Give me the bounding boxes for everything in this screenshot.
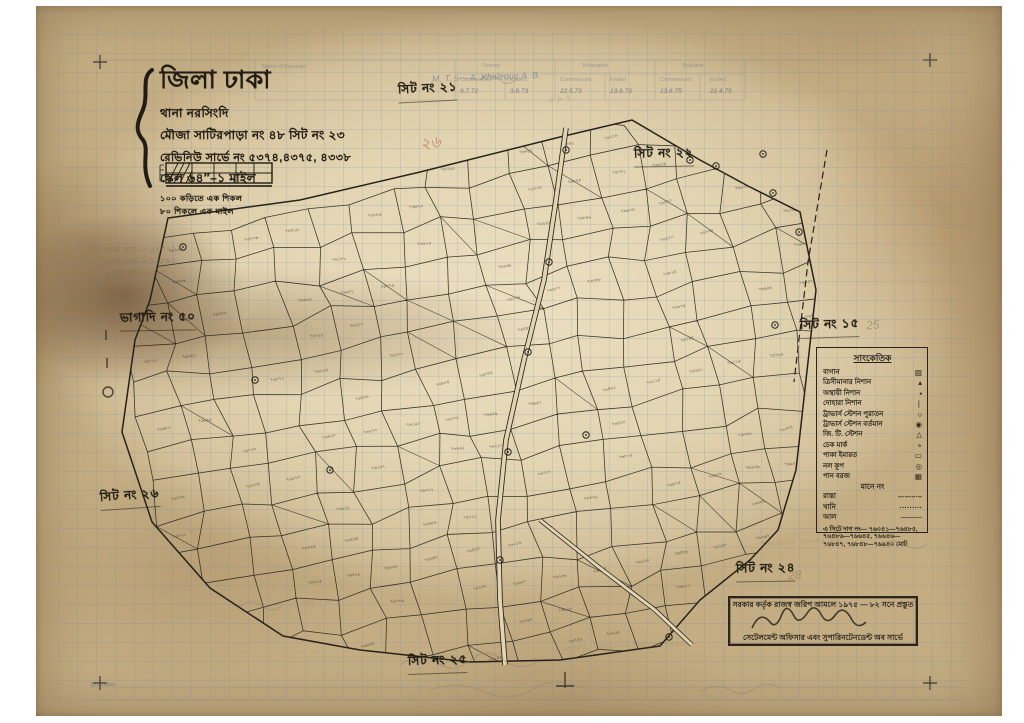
svg-text:৭৬৪২৪: ৭৬৪২৪ <box>465 546 480 555</box>
svg-text:৭৬৫৮০: ৭৬৫৮০ <box>658 198 673 207</box>
svg-text:৭৬৭৩০: ৭৬৭৩০ <box>242 446 257 454</box>
chains-scale-caption: 10 Chains <box>90 682 115 688</box>
legend-symbol: ──── <box>901 513 922 523</box>
legend-symbol: ▨ <box>915 368 922 378</box>
svg-text:৭৬৮৫৭: ৭৬৮৫৭ <box>519 148 534 154</box>
svg-text:৭৬৬২০: ৭৬৬২০ <box>512 578 527 586</box>
svg-text:৭৬৭১৮: ৭৬৭১৮ <box>604 133 619 141</box>
svg-text:৭৬৭৯৭: ৭৬৭৯৭ <box>519 617 534 625</box>
svg-text:৭৬৬৪৫: ৭৬৬৪৫ <box>424 554 439 562</box>
sheet-label: সিট নং ২৬ <box>99 485 160 511</box>
svg-text:৭৬২২৮: ৭৬২২৮ <box>635 557 650 565</box>
svg-text:৭৬৮২৮: ৭৬৮২৮ <box>383 564 398 571</box>
sheet-label: সিট নং ২৫ <box>408 651 468 675</box>
title-block: জিলা ঢাকা থানা নরসিংদি মৌজা সাটিরপাড়া ন… <box>160 60 351 219</box>
svg-text:৭৬৭৮৯: ৭৬৭৮৯ <box>390 598 404 604</box>
svg-text:৭৬১৩৪: ৭৬১৩৪ <box>506 294 521 302</box>
svg-text:৭৬৭৪৯: ৭৬৭৪৯ <box>478 369 493 378</box>
links-line-1: ১০০ কড়িতে এক শিকল <box>160 193 351 206</box>
form-date: 13.6.75 <box>660 88 682 95</box>
svg-text:৭৬৮৭৩: ৭৬৮৭৩ <box>270 376 285 383</box>
legend-symbol: ○ <box>917 410 922 420</box>
svg-text:৭৬১৯৫: ৭৬১৯৫ <box>680 335 695 343</box>
svg-text:৭৬৮০৪: ৭৬৮০৪ <box>618 452 633 459</box>
svg-text:৭৬৮২৫: ৭৬৮২৫ <box>662 269 677 277</box>
svg-text:৭৬১৮৪: ৭৬১৮৪ <box>779 424 794 433</box>
stamp-line-2: সেটেলমেন্ট অফিসার এবং সুপারিনটেনডেন্ট অব… <box>730 633 916 642</box>
svg-text:৭৬৩২৯: ৭৬৩২৯ <box>301 543 316 551</box>
form-date: 3.8.73 <box>510 88 528 95</box>
svg-text:৭৬৫১০: ৭৬৫১০ <box>659 234 674 243</box>
legend-title: সাংকেতিক <box>823 351 922 366</box>
svg-text:৭৬৭০৫: ৭৬৭০৫ <box>528 184 543 192</box>
svg-text:৭৬২০৪: ৭৬২০৪ <box>417 241 431 247</box>
svg-text:৭৬৭৯৮: ৭৬৭৯৮ <box>713 542 728 550</box>
svg-text:৭৬৯০৪: ৭৬৯০৪ <box>621 207 636 214</box>
svg-text:৭৬১৯০: ৭৬১৯০ <box>406 421 421 427</box>
legend-symbol: –·–·–·– <box>898 492 922 502</box>
revenue-survey-line: রেভিনিউ সার্ভে নং ৫৩৭৪,৪৩৭৫, ৪৩৩৮ <box>160 149 351 168</box>
form-group-head: Khanapuri <box>583 63 608 69</box>
svg-text:৭৬৬০৭: ৭৬৬০৭ <box>546 285 561 293</box>
svg-text:৭৬৫৬৪: ৭৬৫৬৪ <box>344 536 359 544</box>
pencil-note: 28 <box>788 568 802 583</box>
svg-text:৭৬৬৩৯: ৭৬৬৩৯ <box>751 498 766 507</box>
svg-text:৭৬২১৬: ৭৬২১৬ <box>507 540 522 548</box>
svg-text:৭৬৩৮৮: ৭৬৩৮৮ <box>587 277 602 284</box>
form-left-head: Name of Kanungo <box>262 64 306 70</box>
svg-text:৭৬৭৩৯: ৭৬৭৩৯ <box>244 235 259 243</box>
svg-text:৭৬৬৮৪: ৭৬৬৮৪ <box>422 520 437 528</box>
title-brace-ornament <box>138 70 152 186</box>
svg-text:৭৬২৩৫: ৭৬২৩৫ <box>246 481 261 489</box>
svg-text:৭৬১৬৭: ৭৬১৬৭ <box>371 464 386 471</box>
svg-text:৭৬৮৭৫: ৭৬৮৭৫ <box>666 480 681 488</box>
legend-item: ত্রিসীমানার নিশান▴ <box>823 378 922 388</box>
svg-text:৭৬৬৫৭: ৭৬৬৫৭ <box>528 400 543 406</box>
legend-item: পান বরজ▦ <box>823 472 922 482</box>
svg-text:৭৬৬২৬: ৭৬৬২৬ <box>360 640 375 649</box>
legend-symbol: ········· <box>900 503 922 513</box>
legend-item: নল কূপ◎ <box>823 462 922 472</box>
form-subhead: Commenced <box>660 77 691 83</box>
svg-text:৭৬৯৬২: ৭৬৯৬২ <box>758 285 773 292</box>
svg-text:৭৬৭২৭: ৭৬৭২৭ <box>537 469 552 477</box>
svg-text:৭৬৭০২: ৭৬৭০২ <box>445 415 460 423</box>
sheet-label: সিট নং ২৪ <box>736 559 796 582</box>
svg-text:৭৬৪৭৬: ৭৬৪৭৬ <box>583 494 598 500</box>
legend-symbol: ▭ <box>915 451 922 461</box>
svg-text:৭৬৬২৪: ৭৬৬২৪ <box>298 297 312 303</box>
svg-text:৭৬৯৬২: ৭৬৯৬২ <box>451 445 465 451</box>
legend-list: বাগান▨ত্রিসীমানার নিশান▴অস্থায়ী নিশান▪দ… <box>823 368 922 482</box>
legend-map-no: মানে নং <box>823 482 922 492</box>
svg-text:৭৬৮৭৯: ৭৬৮৭৯ <box>380 282 395 289</box>
svg-text:৭৬২৩৬: ৭৬২৩৬ <box>745 464 759 470</box>
legend-symbol: ▦ <box>915 472 922 482</box>
legend-item: আল──── <box>823 513 922 523</box>
svg-text:৭৬৭৮৮: ৭৬৭৮৮ <box>172 278 187 285</box>
svg-text:৭৬৯৭৩: ৭৬৯৭৩ <box>286 474 301 482</box>
legend-symbol: ∘ <box>917 441 922 451</box>
legend-item: রাস্তা–·–·–·– <box>823 492 922 502</box>
svg-text:৭৬৫৮৪: ৭৬৫৮৪ <box>674 549 689 556</box>
svg-text:৭৬১১১: ৭৬১১১ <box>463 514 478 520</box>
thana-line: থানা নরসিংদি <box>160 105 351 125</box>
svg-text:৭৬৭৮১: ৭৬৭৮১ <box>612 168 627 174</box>
svg-text:৭৬১৮১: ৭৬১৮১ <box>332 256 347 262</box>
svg-text:৭৬৭৫২: ৭৬৭৫২ <box>212 310 227 317</box>
legend-item: বাগান▨ <box>823 368 922 378</box>
svg-text:৭৬৬৩১: ৭৬৬৩১ <box>340 288 355 295</box>
legend-item: চেক মার্ক∘ <box>823 441 922 451</box>
legend-symbol: △ <box>916 430 922 440</box>
svg-text:৭৬৭৩৮: ৭৬৭৩৮ <box>553 573 568 580</box>
svg-text:৭৬৭৬৪: ৭৬৭৬৪ <box>769 352 783 358</box>
legend-item: দোহারা নিশান❘ <box>823 399 922 409</box>
svg-text:৭৬৮৫৯: ৭৬৮৫৯ <box>567 177 582 185</box>
svg-text:৭৬৮১৮: ৭৬৮১৮ <box>336 505 351 511</box>
svg-text:৭৬৭২২: ৭৬৭২২ <box>143 358 158 365</box>
svg-text:৭৬২১০: ৭৬২১০ <box>349 321 364 328</box>
svg-text:৭৬৪৮৯: ৭৬৪৮৯ <box>355 394 370 402</box>
legend-item: পাকা ইমারত▭ <box>823 451 922 461</box>
pencil-note: ২ ৮ ৭ <box>548 91 572 108</box>
pencil-note: 25 <box>865 317 880 332</box>
legend-item: জি. টি. স্টেশন△ <box>823 430 922 440</box>
svg-text:৭৬৮৬৯: ৭৬৮৬৯ <box>577 214 592 221</box>
svg-text:৭৬২৬৪: ৭৬২৬৪ <box>497 262 512 269</box>
sheet-label: ভাগাদি নং ৫০ <box>120 308 196 331</box>
svg-text:৭৬৬৭৮: ৭৬৬৭৮ <box>708 471 723 479</box>
svg-text:৭৬৪৬১: ৭৬৪৬১ <box>602 385 617 393</box>
scale-line: স্কেল ৬৪″–১ মাইল <box>160 170 351 190</box>
svg-text:৭৬৩০২: ৭৬৩০২ <box>419 487 434 494</box>
preparation-stamp: সরকার কর্তৃক রাজস্ব জরিপ আমলে ১৯৭৫ — ৮২ … <box>728 596 918 646</box>
svg-text:৭৬৪১৯: ৭৬৪১৯ <box>285 227 300 233</box>
legend-item: ট্রাভার্স স্টেশন বর্তমান◉ <box>823 420 922 430</box>
svg-text:৭৬৬৫৯: ৭৬৬৫৯ <box>483 411 498 417</box>
sheet-label: সিট নং ১৫ <box>800 315 860 339</box>
form-subhead: Ended <box>710 77 726 83</box>
form-subhead: Commenced <box>560 77 591 83</box>
svg-text:৭৬২২০: ৭৬২২০ <box>489 443 504 449</box>
svg-text:৭৬৩০০: ৭৬৩০০ <box>389 351 404 358</box>
form-date: 13.6.73 <box>610 88 632 95</box>
legend-box: সাংকেতিক বাগান▨ত্রিসীমানার নিশান▴অস্থায়… <box>816 347 928 533</box>
svg-text:৭৬৯৯০: ৭৬৯৯০ <box>322 432 337 440</box>
svg-text:৭৬১২৪: ৭৬১২৪ <box>646 377 661 385</box>
legend-symbol: ▴ <box>918 378 922 388</box>
form-group-head: Bujharat <box>683 63 704 69</box>
svg-text:৭৬২৬১: ৭৬২৬১ <box>689 367 704 374</box>
svg-text:৭৬৯১১: ৭৬৯১১ <box>676 582 691 589</box>
svg-text:৭৬৭৭০: ৭৬৭৭০ <box>172 532 187 539</box>
svg-text:৭৬৭৩৮: ৭৬৭৩৮ <box>171 494 186 501</box>
svg-text:৭৬৬৪৫: ৭৬৬৪৫ <box>198 417 212 423</box>
legend-symbol: ◉ <box>915 420 922 430</box>
svg-text:৭৬৮৮৯: ৭৬৮৮৯ <box>368 212 383 218</box>
svg-text:৭৬৮৭৫: ৭৬৮৭৫ <box>672 303 687 310</box>
svg-text:৭৬৩৬২: ৭৬৩৬২ <box>738 431 753 438</box>
svg-text:৭৬৫২৯: ৭৬৫২৯ <box>346 571 361 578</box>
svg-text:৭৬৭৩৬: ৭৬৭৩৬ <box>699 227 714 236</box>
scanned-mouza-map-page: { "palette":{"ink":"#26221a","pencil":"#… <box>0 0 1024 723</box>
legend-item: অস্থায়ী নিশান▪ <box>823 389 922 399</box>
svg-text:৭৬২৫৫: ৭৬২৫৫ <box>606 629 621 636</box>
mouza-line: মৌজা সাটিরপাড়া নং ৪৮ সিট নং ২৩ <box>160 127 351 147</box>
svg-text:৭৬৩৪৭: ৭৬৩৪৭ <box>182 353 196 359</box>
svg-text:৭৬২৫৯: ৭৬২৫৯ <box>537 220 552 227</box>
legend-symbol: ◎ <box>915 462 922 472</box>
svg-text:৭৬৬৭৩: ৭৬৬৭৩ <box>409 203 423 209</box>
svg-text:৭৬২১৮: ৭৬২১৮ <box>558 606 573 612</box>
legend-symbol: ❘ <box>916 399 922 409</box>
form-subhead: Ended <box>610 77 626 83</box>
form-date: 21.4.75 <box>710 88 732 95</box>
legend-item: ট্রাভার্স স্টেশন পুরাতন○ <box>823 410 922 420</box>
legend-linework-list: রাস্তা–·–·–·–খানি·········আল──── <box>823 492 922 523</box>
svg-text:৭৬৪২৩: ৭৬৪২৩ <box>611 419 626 427</box>
pencil-note: চূড়ান্ত যাঁচ — ৩৬৫ <box>106 267 166 282</box>
legend-item: খানি········· <box>823 503 922 513</box>
svg-text:৭৬৪৮৪: ৭৬৪৮৪ <box>435 379 450 387</box>
district-title: জিলা ঢাকা <box>160 60 351 103</box>
sheet-label: সিট নং ২২ <box>634 144 694 167</box>
svg-text:৭৬৭৫৫: ৭৬৭৫৫ <box>310 332 325 338</box>
svg-text:৭৬২২৬: ৭৬২২৬ <box>314 367 329 374</box>
form-date: 9.7.72 <box>460 88 478 95</box>
svg-text:৭৬২৬২: ৭৬২৬২ <box>472 583 487 591</box>
svg-text:৭৬২৭৩: ৭৬২৭৩ <box>363 427 378 435</box>
svg-text:৭৬৩১৫: ৭৬৩১৫ <box>308 579 323 585</box>
form-group-head: Survey <box>483 63 500 69</box>
legend-symbol: ▪ <box>919 389 922 399</box>
svg-text:৭৬৬৮৩: ৭৬৬৮৩ <box>156 425 171 432</box>
stamp-line-1: সরকার কর্তৃক রাজস্ব জরিপ আমলে ১৯৭৫ — ৮২ … <box>730 600 916 609</box>
links-line-2: ৮০ শিকলে এক মাইল <box>160 206 351 219</box>
pencil-note: ২৬ <box>418 129 442 159</box>
